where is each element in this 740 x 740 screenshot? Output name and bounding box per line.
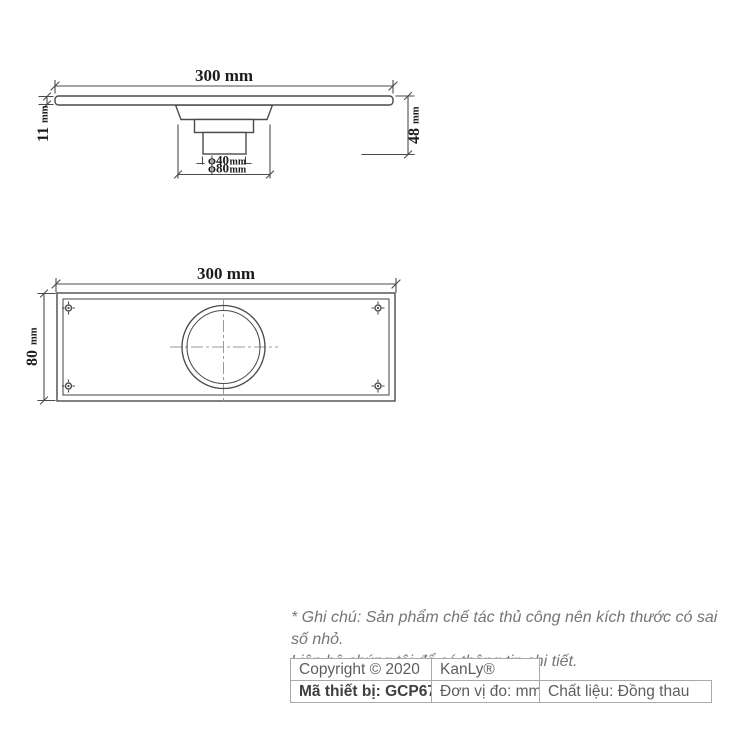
side-depth-unit: mm (411, 106, 422, 124)
side-height-unit: mm (40, 105, 51, 123)
drain-body-step (195, 120, 254, 133)
plan-view-drawing: 300 mm (24, 264, 400, 404)
side-dia80-value: ϕ80 (208, 161, 229, 176)
plan-width-label: 300 mm (197, 264, 255, 283)
side-width-dimension: 300 mm (51, 66, 397, 93)
drain-body-trapezoid (176, 105, 273, 120)
plan-outline (57, 293, 395, 401)
grate-bar (55, 96, 393, 105)
spec-table: Copyright © 2020 KanLy® Mã thiết bị: GCP… (290, 658, 712, 703)
side-profile (55, 96, 393, 154)
table-row: Copyright © 2020 KanLy® (290, 658, 540, 681)
table-row: Mã thiết bị: GCP67 Đơn vị đo: mm Chất li… (290, 680, 712, 703)
brand-cell: KanLy® (431, 659, 539, 680)
note-line-1: * Ghi chú: Sản phẩm chế tác thủ công nên… (291, 607, 731, 651)
plan-height-value: 80 (24, 350, 41, 366)
side-depth-value: 48 (406, 128, 423, 144)
plate-inner-rect (63, 299, 389, 395)
material-cell: Chất liệu: Đồng thau (539, 681, 711, 702)
plan-width-dimension: 300 mm (52, 264, 400, 292)
drain-outlet-pipe (203, 133, 246, 155)
side-width-label: 300 mm (195, 66, 253, 85)
side-height-value: 11 (35, 127, 52, 142)
device-code-cell: Mã thiết bị: GCP67 (291, 681, 431, 702)
unit-cell: Đơn vị đo: mm (431, 681, 539, 702)
side-view-drawing: 300 mm 11 mm 48 (35, 66, 423, 178)
side-dia80-unit: mm (230, 165, 247, 176)
copyright-cell: Copyright © 2020 (291, 659, 431, 680)
side-height-dimension: 11 mm (35, 93, 53, 142)
technical-drawing-page: 300 mm 11 mm 48 (0, 0, 740, 740)
plan-height-dimension: 80 mm (24, 290, 55, 404)
plan-height-unit: mm (29, 327, 40, 345)
